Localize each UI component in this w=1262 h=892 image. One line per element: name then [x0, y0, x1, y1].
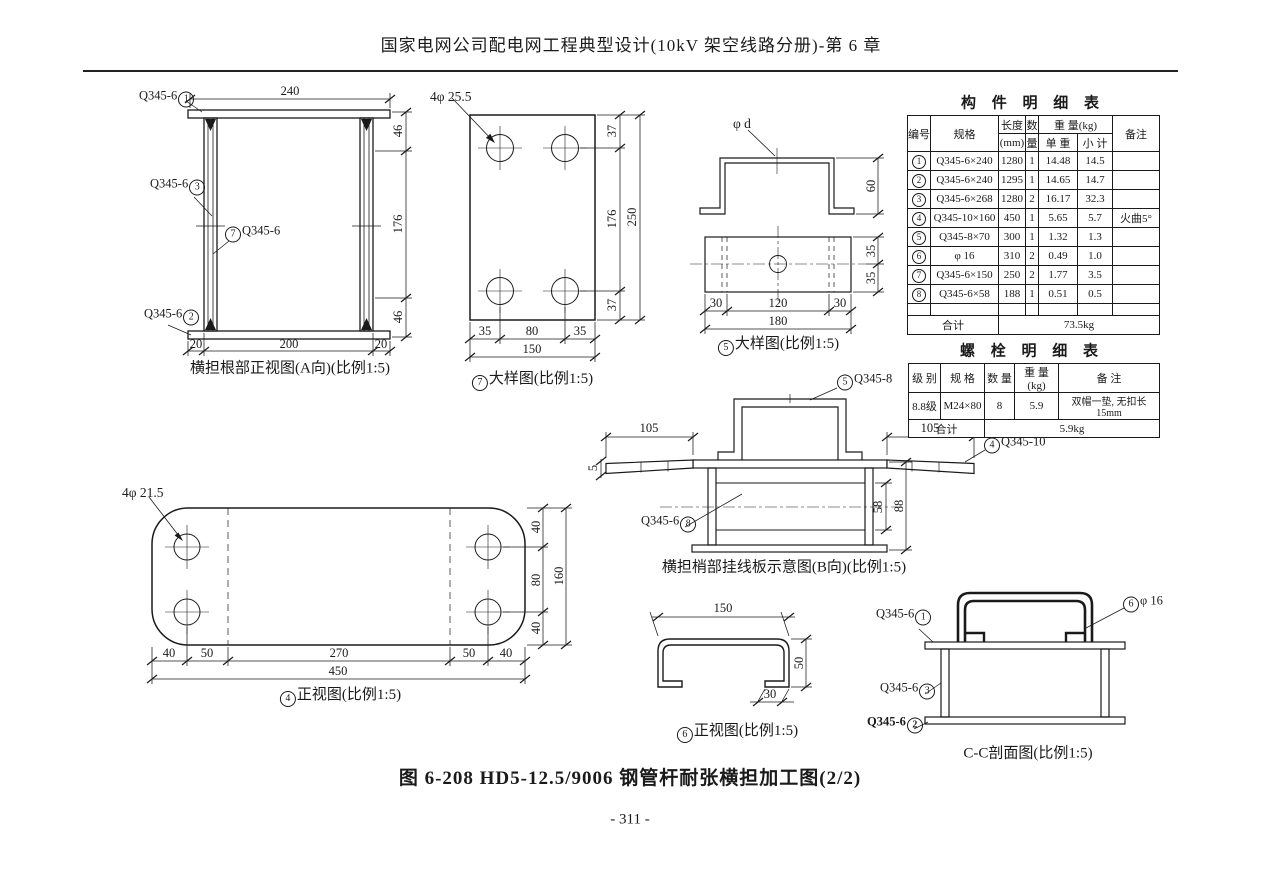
dim-200: 200 — [280, 337, 299, 351]
dim-50-clamp: 50 — [792, 657, 806, 670]
dim-35-right: 35 — [574, 324, 587, 338]
drawing-4-geometry — [149, 497, 525, 645]
col-header-weight: 重 量(kg) — [1039, 116, 1113, 134]
part-7-balloon: 7 — [225, 227, 241, 243]
part-3-balloon: 3 — [189, 180, 205, 196]
table-row: 5Q345-8×7030011.321.3 — [908, 228, 1160, 247]
table-row-total: 合计73.5kg — [908, 316, 1160, 335]
part-label-5: 5Q345-8 — [836, 372, 892, 391]
dim-176: 176 — [391, 215, 405, 234]
bolt-col-qty: 数 量 — [985, 364, 1015, 393]
table-row: 4Q345-10×16045015.655.7火曲5° — [908, 209, 1160, 228]
dim-80-mid: 80 — [529, 574, 543, 587]
drawing-7-caption: 7大样图(比例1:5) — [471, 371, 593, 391]
dim-30-clamp: 30 — [764, 687, 777, 701]
col-header-len: 长度 — [999, 116, 1026, 134]
caption-6-balloon: 6 — [677, 727, 693, 743]
drawing-b-caption: 横担梢部挂线板示意图(B向)(比例1:5) — [662, 559, 906, 576]
dim-40-bottom: 40 — [529, 622, 543, 635]
table-row: 1Q345-6×2401280114.4814.5 — [908, 152, 1160, 171]
cc-part-label-2: Q345-62 — [867, 715, 924, 734]
dim-250: 250 — [625, 208, 639, 227]
bolt-table: 级 别 规 格 数 量 重 量(kg) 备 注 8.8级 M24×80 8 5.… — [908, 363, 1160, 438]
dim-105-left: 105 — [640, 421, 659, 435]
dim-180: 180 — [769, 314, 788, 328]
dim-60: 60 — [864, 180, 878, 193]
dim-30-left: 30 — [710, 296, 723, 310]
part-label-8: Q345-68 — [641, 514, 697, 533]
drawing-sheet-page: 国家电网公司配电网工程典型设计(10kV 架空线路分册)-第 6 章 — [0, 0, 1262, 892]
col-header-unit-weight: 单 重 — [1039, 134, 1078, 152]
dim-5: 5 — [586, 465, 600, 471]
drawing-5-caption: 5大样图(比例1:5) — [717, 336, 839, 356]
dim-80: 80 — [526, 324, 539, 338]
col-header-subtotal: 小 计 — [1078, 134, 1113, 152]
drawing-cc-caption: C-C剖面图(比例1:5) — [963, 745, 1092, 762]
component-table: 编号 规格 长度 数 重 量(kg) 备注 (mm) 量 单 重 小 计 1Q3… — [907, 115, 1160, 335]
part-label-3: Q345-63 — [150, 177, 206, 196]
dim-40-top: 40 — [529, 521, 543, 534]
col-header-qty2: 量 — [1026, 134, 1039, 152]
cc-part-6-balloon: 6 — [1123, 597, 1139, 613]
dim-46-top: 46 — [391, 125, 405, 138]
dim-240: 240 — [281, 84, 300, 98]
dim-40-b5: 40 — [500, 646, 513, 660]
part-label-7: 7Q345-6 — [224, 224, 280, 243]
dim-35-lower: 35 — [864, 272, 878, 285]
page-number: - 311 - — [610, 811, 649, 828]
dim-450: 450 — [329, 664, 348, 678]
dim-105-right: 105 — [921, 421, 940, 435]
dim-50-b2: 50 — [201, 646, 214, 660]
caption-7-balloon: 7 — [472, 375, 488, 391]
drawing-a-geometry — [188, 110, 390, 339]
table-row-empty — [908, 304, 1160, 316]
bolt-col-spec: 规 格 — [941, 364, 985, 393]
drawing-4-caption: 4正视图(比例1:5) — [279, 687, 401, 707]
dim-37-bottom: 37 — [605, 299, 619, 312]
part-8-balloon: 8 — [680, 517, 696, 533]
col-header-len-unit: (mm) — [999, 134, 1026, 152]
col-header-num: 编号 — [908, 116, 931, 152]
part-5-balloon: 5 — [837, 375, 853, 391]
drawing-a-caption: 横担根部正视图(A向)(比例1:5) — [190, 360, 390, 377]
dim-58: 58 — [871, 501, 885, 514]
bolt-col-weight: 重 量(kg) — [1015, 364, 1059, 393]
table-row: 6φ 1631020.491.0 — [908, 247, 1160, 266]
bolt-col-grade: 级 别 — [909, 364, 941, 393]
dim-50-b4: 50 — [463, 646, 476, 660]
dim-30-right: 30 — [834, 296, 847, 310]
col-header-note: 备注 — [1113, 116, 1160, 152]
dim-40-b1: 40 — [163, 646, 176, 660]
dim-88: 88 — [892, 500, 906, 513]
part-4-balloon: 4 — [984, 438, 1000, 454]
table-row: 2Q345-6×2401295114.6514.7 — [908, 171, 1160, 190]
part-2-balloon: 2 — [183, 310, 199, 326]
drawing-cc-geometry — [914, 593, 1125, 729]
part-1-balloon: 1 — [178, 92, 194, 108]
bolt-col-note: 备 注 — [1059, 364, 1160, 393]
bolt-table-title: 螺 栓 明 细 表 — [960, 343, 1104, 360]
hole-callout-21_5: 4φ 21.5 — [122, 485, 164, 501]
dim-160: 160 — [552, 567, 566, 586]
table-row: 3Q345-6×2681280216.1732.3 — [908, 190, 1160, 209]
dim-150-total: 150 — [523, 342, 542, 356]
drawing-7-geometry — [452, 98, 595, 320]
dim-37-top: 37 — [605, 125, 619, 138]
hole-callout-25_5: 4φ 25.5 — [430, 89, 472, 105]
part-label-4: 4Q345-10 — [983, 435, 1045, 454]
cc-part-label-3: Q345-63 — [880, 681, 936, 700]
figure-caption: 图 6-208 HD5-12.5/9006 钢管杆耐张横担加工图(2/2) — [399, 768, 861, 790]
component-table-title: 构 件 明 细 表 — [961, 95, 1105, 112]
dim-270: 270 — [330, 646, 349, 660]
drawing-6-caption: 6正视图(比例1:5) — [676, 723, 798, 743]
cc-part-label-1: Q345-61 — [876, 607, 932, 626]
drawing-5-dimlines — [700, 154, 884, 334]
drawing-7-dimlines — [465, 111, 645, 362]
dim-176-holes: 176 — [605, 210, 619, 229]
dim-20-left: 20 — [190, 337, 203, 351]
part-label-2: Q345-62 — [144, 307, 200, 326]
dim-20-right: 20 — [375, 337, 388, 351]
drawing-6-geometry — [658, 639, 789, 687]
cc-part-label-6: 6φ 16 — [1122, 594, 1163, 613]
table-row: 8Q345-6×5818810.510.5 — [908, 285, 1160, 304]
col-header-spec: 规格 — [931, 116, 999, 152]
drawing-5-geometry — [690, 130, 866, 303]
cc-part-2-balloon: 2 — [907, 718, 923, 734]
caption-4-balloon: 4 — [280, 691, 296, 707]
cc-part-1-balloon: 1 — [915, 610, 931, 626]
dim-150-clamp: 150 — [714, 601, 733, 615]
part-label-1: Q345-61 — [139, 89, 195, 108]
caption-5-balloon: 5 — [718, 340, 734, 356]
cc-part-3-balloon: 3 — [919, 684, 935, 700]
dim-46-bottom: 46 — [391, 311, 405, 324]
dim-120: 120 — [769, 296, 788, 310]
dim-35-upper: 35 — [864, 245, 878, 258]
dim-35-left: 35 — [479, 324, 492, 338]
table-row: 7Q345-6×15025021.773.5 — [908, 266, 1160, 285]
col-header-qty: 数 — [1026, 116, 1039, 134]
bolt-row: 8.8级 M24×80 8 5.9 双帽一垫, 无扣长15mm — [909, 393, 1160, 420]
hole-callout-phi-d: φ d — [733, 116, 751, 132]
